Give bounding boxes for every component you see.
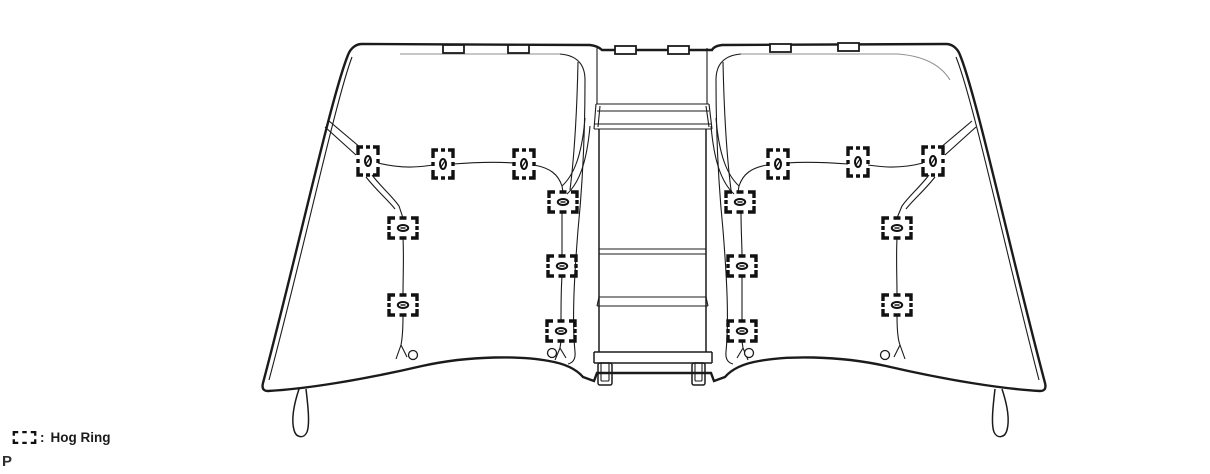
center-armrest-section	[594, 48, 712, 385]
hog-ring-marker	[728, 256, 756, 276]
headrest-slot	[770, 44, 791, 52]
headrest-slot	[838, 43, 859, 51]
headrest-slot	[615, 46, 636, 54]
left-edge-inner-line	[269, 57, 352, 380]
grommet-hole	[745, 349, 754, 358]
hog-ring-marker	[883, 218, 911, 238]
grommet-hole	[548, 349, 557, 358]
panel-inner-lines	[400, 54, 950, 364]
armrest-body-edges	[599, 129, 706, 352]
headrest-slot	[508, 45, 529, 53]
rear-seatback-line-drawing	[0, 0, 1210, 474]
armrest-horizontal-seams	[597, 249, 708, 306]
legend-label: Hog Ring	[51, 430, 111, 445]
left-panel-center-edge-inner	[570, 62, 578, 190]
hog-ring-marker	[547, 321, 575, 341]
armrest-band-lines	[594, 104, 712, 129]
hog-ring-marker	[883, 295, 911, 315]
hog-rings-layer	[358, 147, 943, 341]
hog-ring-marker	[848, 148, 868, 176]
hog-ring-marker	[389, 295, 417, 315]
hog-ring-marker	[358, 147, 378, 175]
hog-ring-marker	[433, 150, 453, 178]
right-panel-center-edge-inner	[723, 62, 731, 190]
seam-lines	[325, 121, 976, 360]
hog-ring-marker	[389, 218, 417, 238]
left-vertical-seam	[366, 175, 407, 359]
left-leader-lines	[325, 121, 361, 155]
legend-separator: :	[40, 430, 45, 445]
center-bottom-bar	[594, 352, 712, 363]
hog-ring-marker	[728, 321, 756, 341]
right-leader-lines	[940, 121, 976, 155]
hog-ring-symbol-icon	[12, 431, 37, 444]
hog-ring-marker	[548, 256, 576, 276]
seatback-diagram-canvas	[0, 0, 1210, 474]
frame-legs	[293, 389, 1008, 437]
hog-ring-marker	[726, 192, 754, 212]
legend: : Hog Ring	[12, 430, 111, 445]
page-marker: P	[2, 453, 12, 470]
right-panel-center-edge	[716, 54, 741, 364]
grommet-hole	[409, 351, 418, 360]
right-vertical-seam	[894, 175, 935, 359]
hog-ring-marker	[514, 150, 534, 178]
hog-ring-marker	[923, 147, 943, 175]
right-top-seam	[738, 162, 923, 192]
hog-ring-marker	[768, 150, 788, 178]
left-panel-center-edge	[560, 54, 585, 364]
left-wire-leg	[293, 389, 309, 437]
seatback-outer-outline	[263, 44, 1046, 391]
right-wire-leg	[992, 389, 1008, 437]
hog-ring-marker	[549, 192, 577, 212]
outer-outline-path	[263, 44, 1046, 391]
right-panel-top-inner-line	[741, 54, 950, 80]
headrest-slot	[668, 46, 689, 54]
right-center-seam	[737, 212, 748, 360]
left-center-seam	[555, 212, 566, 360]
headrest-slot	[443, 45, 464, 53]
right-edge-inner-line	[956, 57, 1039, 380]
grommet-hole	[881, 351, 890, 360]
